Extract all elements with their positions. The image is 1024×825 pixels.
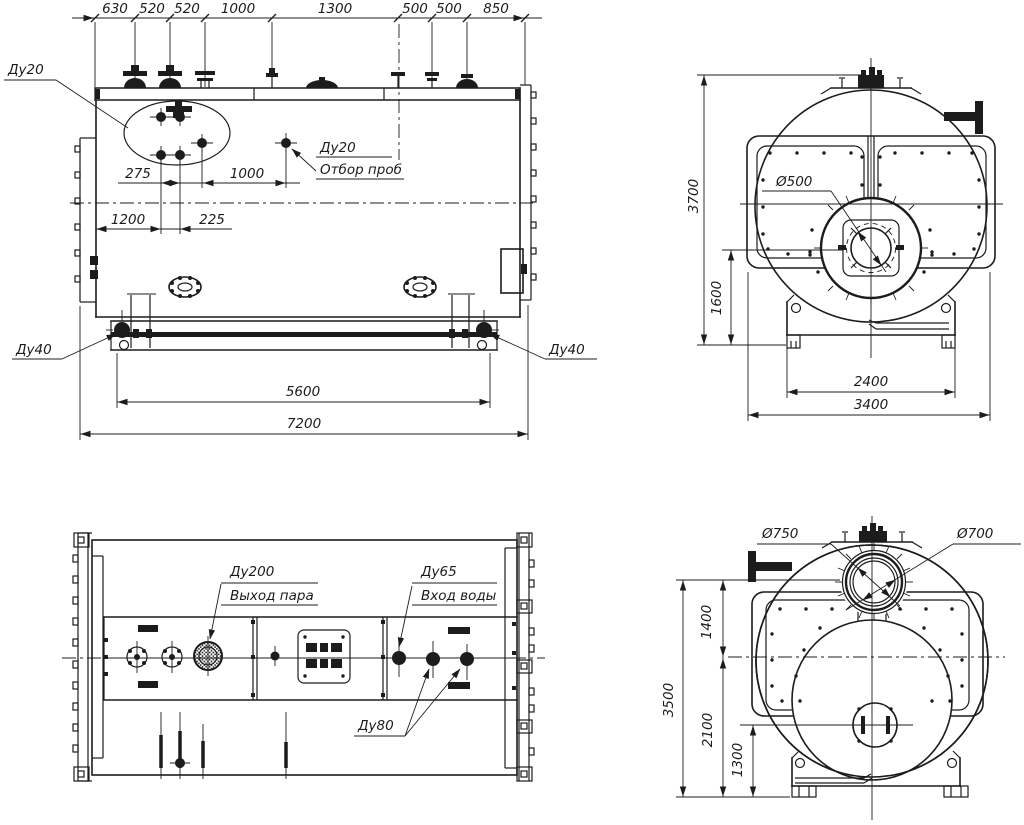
label-du20: Ду20: [7, 62, 44, 78]
top-fittings: [123, 65, 478, 88]
handhole: [169, 276, 201, 298]
dim-2400: 2400: [854, 374, 888, 390]
small-nozzle: [271, 646, 280, 666]
du80-nozzle: [460, 644, 474, 680]
side-bottom-dims: 5600 7200: [80, 305, 528, 440]
dim-520a: 520: [139, 1, 165, 17]
label-du80: Ду80: [357, 718, 394, 734]
bottom-fittings: [161, 712, 286, 779]
drawing-canvas: 630 520 520 1000 1300 500 500 850: [0, 0, 1024, 825]
label-d500: Ø500: [775, 174, 812, 190]
handhole: [404, 276, 436, 298]
level-gauge-ports: [124, 100, 230, 165]
side-left-flange: [75, 138, 98, 302]
dome-fitting: [306, 77, 338, 88]
stub-fitting: [425, 72, 439, 88]
dim-500b: 500: [436, 1, 462, 17]
label-du65: Ду65: [420, 564, 457, 580]
label-otbor-prob: Отбор проб: [320, 162, 402, 178]
top-valve-cluster: [842, 523, 905, 542]
plan-right-flange: [517, 533, 534, 781]
support-skid: [106, 294, 499, 350]
dim-1000: 1000: [230, 166, 264, 182]
label-du20-sample: Ду20: [319, 140, 356, 156]
dim-7200: 7200: [287, 416, 321, 432]
anchor-hole: [478, 341, 487, 350]
stub-fitting: [391, 72, 405, 88]
dim-225: 225: [199, 212, 225, 228]
dim-1300: 1300: [730, 743, 746, 777]
dim-2100: 2100: [700, 713, 716, 747]
drain-nozzle-left: [106, 310, 130, 338]
safety-valve-flange: [127, 641, 147, 673]
side-elevation-view: 630 520 520 1000 1300 500 500 850: [4, 1, 597, 440]
nameplate: [298, 630, 350, 683]
label-du40-left: Ду40: [15, 342, 52, 358]
handwheel-fitting: [456, 74, 478, 88]
dim-3500: 3500: [661, 683, 677, 717]
anchor-hole: [120, 341, 129, 350]
side-right-flange: [501, 85, 536, 300]
side-inner-dims: 275 1000 1200 225: [96, 149, 300, 234]
side-pipe-right: [944, 101, 983, 134]
label-d750: Ø750: [761, 526, 798, 542]
dim-5600: 5600: [286, 384, 320, 400]
dim-275: 275: [125, 166, 151, 182]
side-pipe-left: [748, 551, 792, 582]
front-view: 3700 1600 2400 3400 Ø500: [686, 58, 1003, 421]
port-hole: [191, 134, 213, 152]
plan-left-flange: [73, 533, 92, 781]
label-steam-out: Выход пара: [230, 588, 314, 604]
plan-drum-band: [104, 617, 517, 700]
label-du200: Ду200: [229, 564, 274, 580]
label-d700: Ø700: [956, 526, 993, 542]
dim-1600: 1600: [709, 281, 725, 315]
dim-1200: 1200: [111, 212, 145, 228]
side-labels: Ду20 Ду20 Отбор проб Ду40 Ду40: [4, 62, 597, 359]
dim-1000-top: 1000: [221, 1, 255, 17]
dim-1400: 1400: [699, 605, 715, 639]
dim-1300: 1300: [318, 1, 352, 17]
dim-520b: 520: [174, 1, 200, 17]
plan-view: Ду200 Выход пара Ду65 Вход воды Ду80: [62, 533, 545, 781]
dim-850: 850: [483, 1, 509, 17]
dim-3400: 3400: [854, 397, 888, 413]
side-body: [70, 24, 536, 350]
safety-valve-flange: [162, 641, 182, 673]
dim-500a: 500: [402, 1, 428, 17]
label-water-in: Вход воды: [421, 588, 497, 604]
stub-fitting: [266, 68, 278, 88]
dim-630: 630: [102, 1, 128, 17]
steam-outlet-nozzle: [194, 636, 222, 676]
label-du40-right: Ду40: [548, 342, 585, 358]
boiler-technical-drawing: 630 520 520 1000 1300 500 500 850: [0, 0, 1024, 825]
rear-view: 3500 1400 2100 1300 Ø750 Ø700: [661, 516, 1021, 820]
dim-3700: 3700: [686, 179, 702, 213]
